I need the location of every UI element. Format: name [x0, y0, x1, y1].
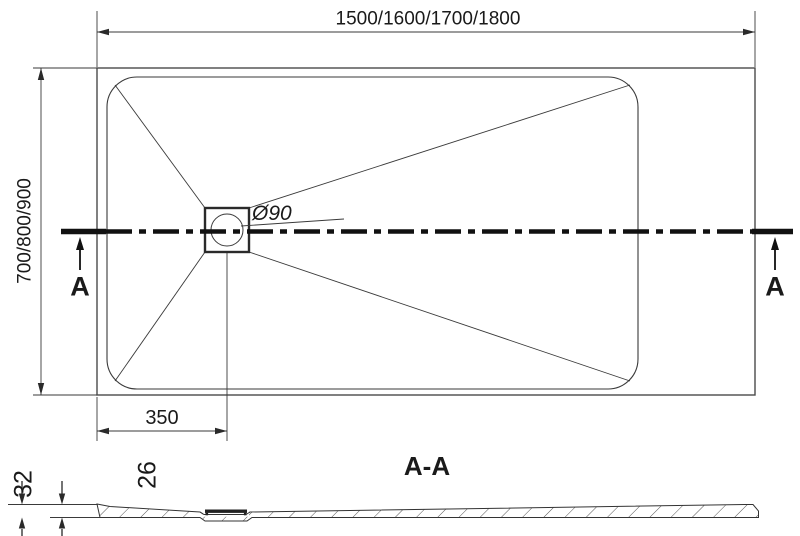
section-marker-left-label: A — [70, 274, 90, 301]
section-view-title: A-A — [404, 453, 450, 479]
drain-diameter-label: Ø90 — [252, 203, 292, 224]
inner-height-dimension-label: 26 — [136, 461, 161, 489]
section-arrow-right — [771, 237, 779, 270]
top-width-dimension-label: 1500/1600/1700/1800 — [336, 10, 521, 29]
drawing-geometry — [0, 0, 800, 536]
section-marker-right-label: A — [765, 274, 785, 301]
section-extension-lines — [8, 505, 100, 518]
section-profile — [97, 504, 759, 521]
section-arrow-left — [76, 237, 84, 270]
slope-lines — [115, 85, 630, 441]
shower-tray-technical-drawing: 1500/1600/1700/1800 700/800/900 Ø90 350 … — [0, 0, 800, 536]
edge-height-dimension-label: 32 — [12, 470, 37, 498]
drain-cover — [205, 510, 247, 513]
left-height-dimension-label: 700/800/900 — [16, 178, 35, 284]
drain-offset-dimension-label: 350 — [145, 408, 178, 428]
